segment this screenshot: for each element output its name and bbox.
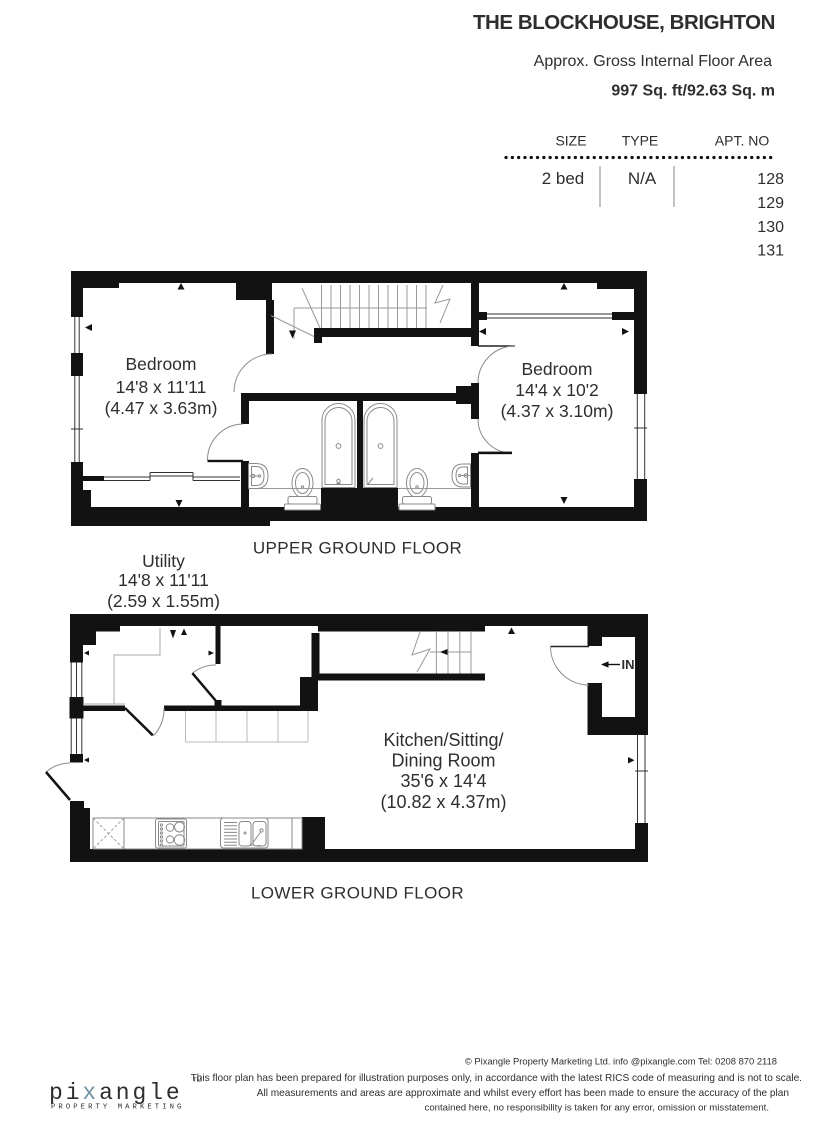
svg-text:(10.82 x 4.37m): (10.82 x 4.37m) (380, 792, 506, 812)
svg-text:131: 131 (757, 243, 784, 260)
svg-text:IN: IN (622, 657, 635, 672)
svg-text:14'8 x 11'11: 14'8 x 11'11 (118, 570, 209, 590)
svg-text:contained here, no responsibil: contained here, no responsibility is tak… (425, 1103, 769, 1114)
svg-text:Bedroom: Bedroom (125, 354, 196, 374)
svg-text:(2.59 x 1.55m): (2.59 x 1.55m) (107, 591, 220, 611)
svg-text:14'4 x 10'2: 14'4 x 10'2 (515, 380, 599, 400)
svg-text:SIZE: SIZE (555, 133, 586, 149)
svg-text:Bedroom: Bedroom (521, 359, 592, 379)
svg-text:APT. NO: APT. NO (715, 133, 770, 149)
svg-text:All measurements and areas are: All measurements and areas are approxima… (257, 1088, 789, 1099)
svg-text:Utility: Utility (142, 551, 185, 571)
svg-text:pixangle: pixangle (49, 1080, 183, 1106)
svg-text:TYPE: TYPE (622, 133, 659, 149)
svg-text:© Pixangle Property Marketing: © Pixangle Property Marketing Ltd. info … (465, 1056, 777, 1067)
svg-text:128: 128 (757, 171, 784, 188)
svg-text:130: 130 (757, 219, 784, 236)
svg-text:UPPER GROUND FLOOR: UPPER GROUND FLOOR (253, 539, 462, 558)
svg-text:This floor plan has been prepa: This floor plan has been prepared for il… (191, 1073, 802, 1084)
svg-text:2 bed: 2 bed (542, 169, 585, 188)
svg-text:35'6 x 14'4: 35'6 x 14'4 (401, 771, 487, 791)
svg-text:LOWER GROUND FLOOR: LOWER GROUND FLOOR (251, 884, 464, 903)
svg-text:Dining Room: Dining Room (391, 751, 495, 771)
svg-text:997 Sq. ft/92.63 Sq. m: 997 Sq. ft/92.63 Sq. m (611, 83, 775, 100)
svg-text:Kitchen/Sitting/: Kitchen/Sitting/ (383, 730, 503, 750)
svg-text:(4.37 x 3.10m): (4.37 x 3.10m) (501, 401, 614, 421)
svg-text:N/A: N/A (628, 169, 657, 188)
svg-text:PROPERTY MARKETING: PROPERTY MARKETING (51, 1104, 184, 1112)
svg-text:129: 129 (757, 195, 784, 212)
svg-text:(4.47 x 3.63m): (4.47 x 3.63m) (105, 398, 218, 418)
svg-text:14'8 x 11'11: 14'8 x 11'11 (116, 377, 207, 397)
svg-text:Approx. Gross Internal Floor A: Approx. Gross Internal Floor Area (534, 53, 772, 70)
svg-text:THE BLOCKHOUSE, BRIGHTON: THE BLOCKHOUSE, BRIGHTON (473, 11, 775, 34)
